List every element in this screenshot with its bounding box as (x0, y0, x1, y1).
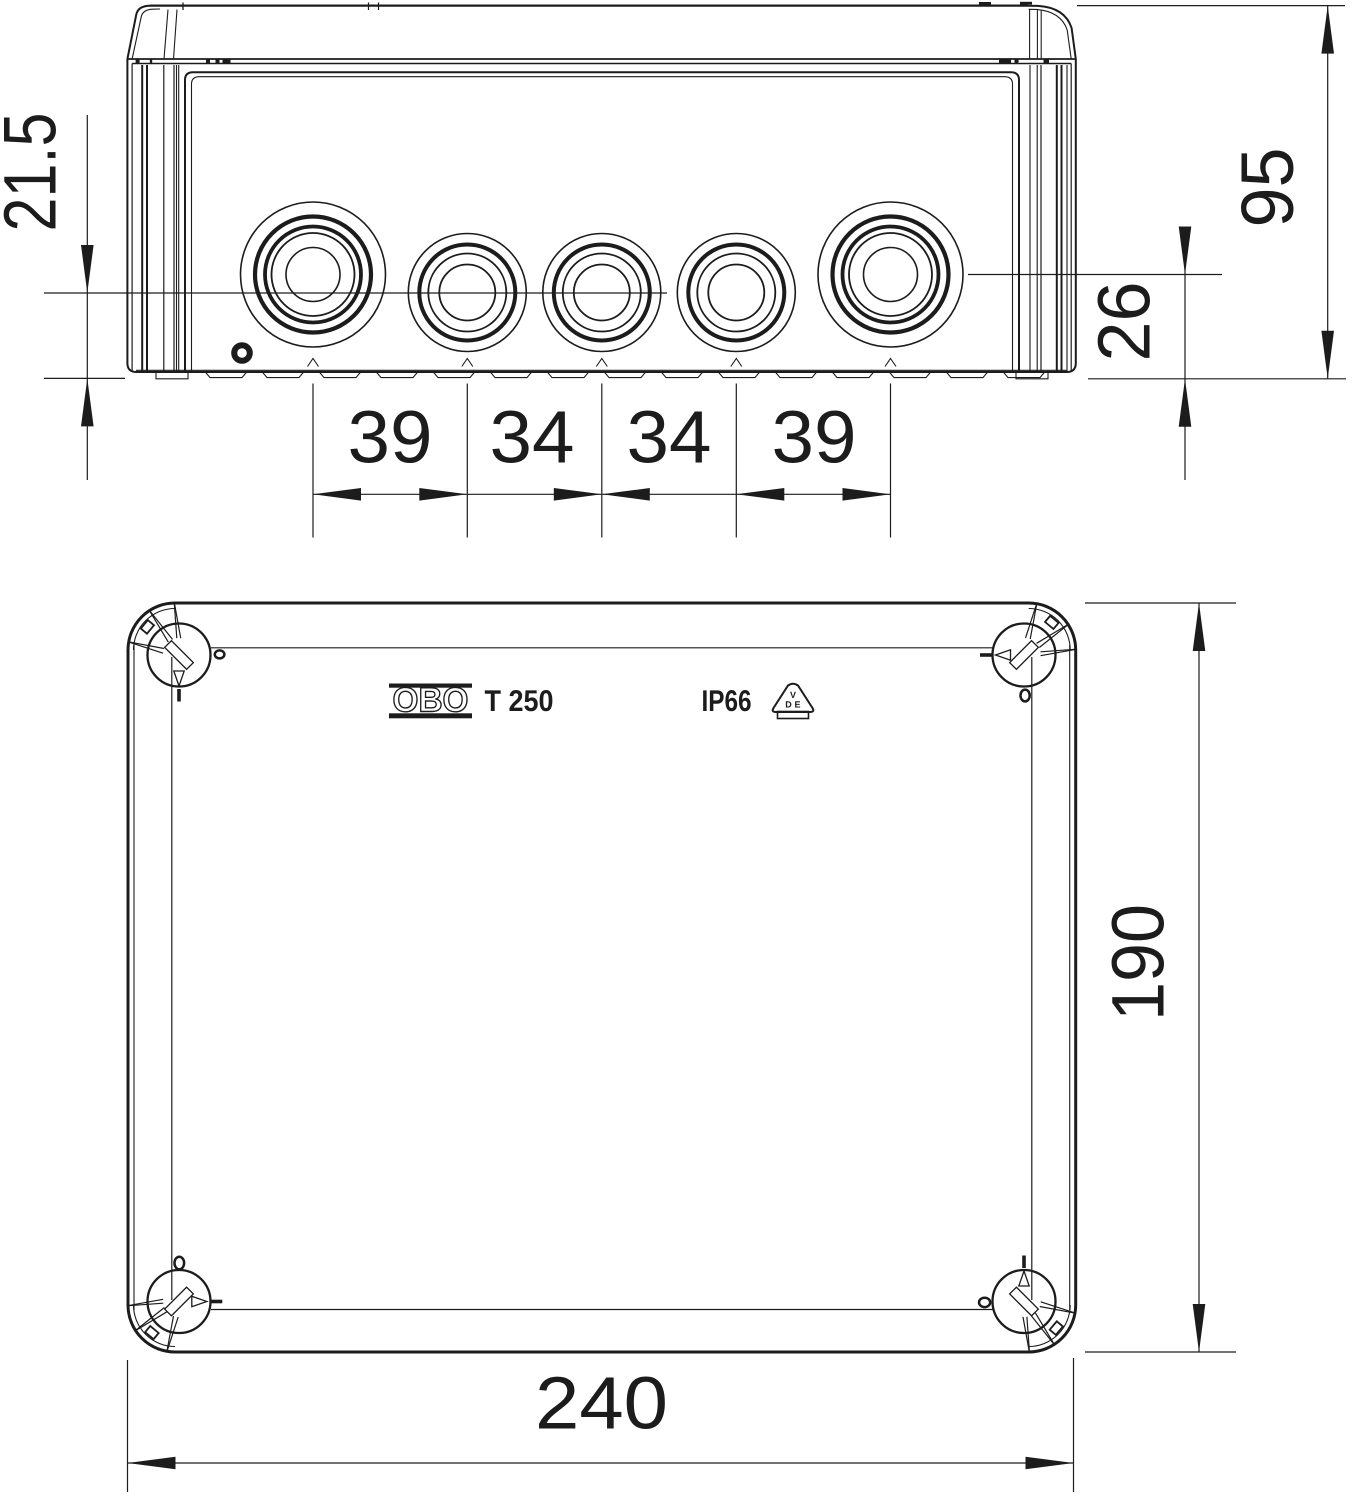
svg-text:E: E (794, 699, 800, 709)
svg-text:IP66: IP66 (701, 685, 751, 718)
svg-text:T 250: T 250 (484, 685, 553, 718)
svg-text:190: 190 (1097, 904, 1180, 1021)
svg-text:21.5: 21.5 (0, 113, 72, 232)
svg-text:95: 95 (1226, 148, 1309, 228)
svg-text:39: 39 (772, 396, 857, 479)
svg-text:240: 240 (535, 1362, 668, 1445)
svg-text:26: 26 (1083, 282, 1166, 362)
svg-text:OBO: OBO (392, 681, 468, 719)
svg-text:V: V (790, 690, 796, 700)
svg-text:34: 34 (490, 396, 575, 479)
svg-text:39: 39 (348, 396, 433, 479)
svg-text:D: D (785, 699, 792, 709)
svg-text:34: 34 (627, 396, 712, 479)
